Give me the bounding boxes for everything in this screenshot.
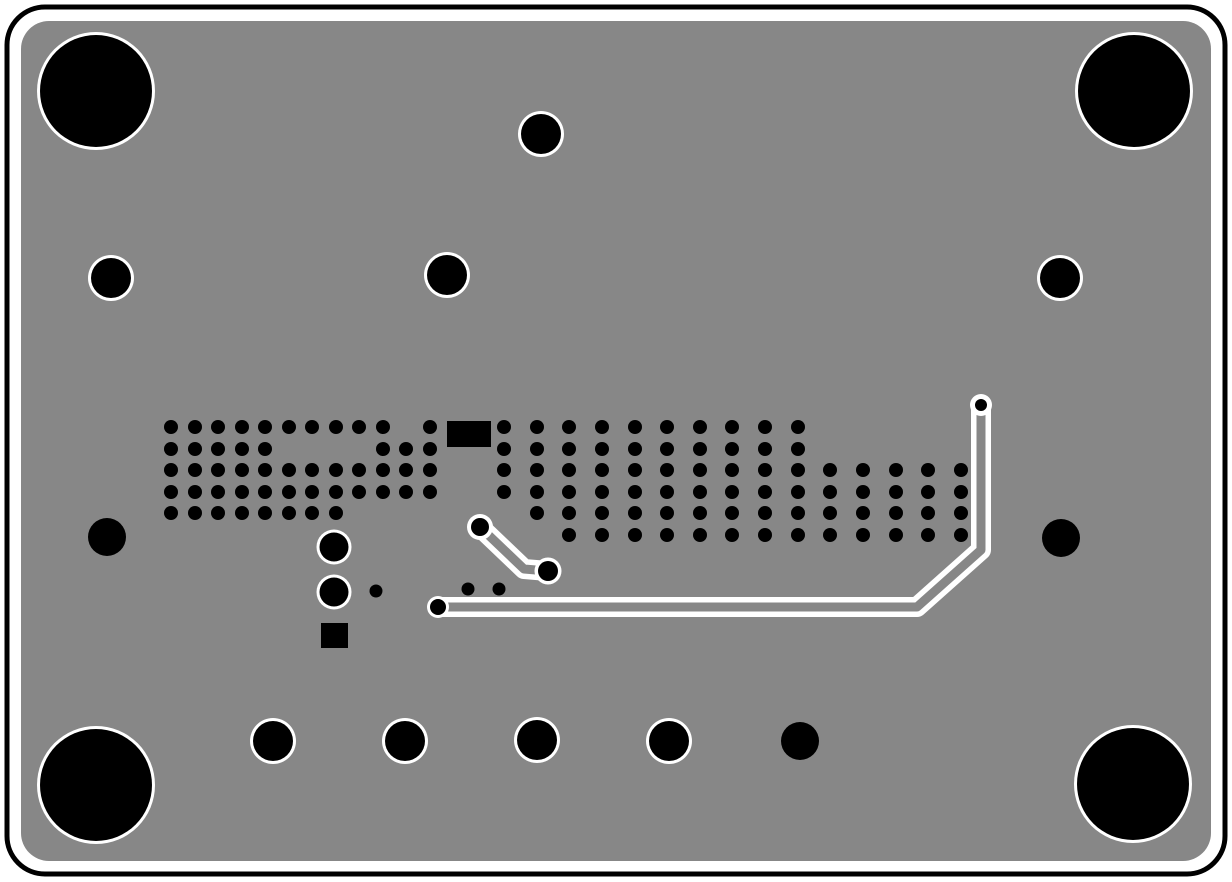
via [329,506,343,520]
via [530,506,544,520]
via [921,485,935,499]
via [376,485,390,499]
plated-hole [385,721,425,761]
via [758,420,772,434]
via [725,506,739,520]
via [628,463,642,477]
via [628,442,642,456]
via [399,463,413,477]
mounting-hole [40,729,152,841]
plain-hole [88,518,126,556]
via [562,463,576,477]
plated-hole [253,721,293,761]
trace-terminal-drill [975,399,987,411]
via [376,420,390,434]
via [889,528,903,542]
via [693,463,707,477]
via [791,485,805,499]
via [188,442,202,456]
via [823,463,837,477]
via [954,528,968,542]
via [562,420,576,434]
via [628,420,642,434]
via [725,485,739,499]
via [399,485,413,499]
via [258,463,272,477]
via [211,420,225,434]
via [282,506,296,520]
via [282,485,296,499]
plated-hole [1040,258,1080,298]
via [562,506,576,520]
via [235,485,249,499]
via [282,463,296,477]
via [823,506,837,520]
mounting-hole [40,35,152,147]
via [235,463,249,477]
plated-hole [427,255,467,295]
plated-hole [517,720,557,760]
via [562,442,576,456]
via [660,442,674,456]
smd-pad [447,421,491,447]
plated-hole [649,721,689,761]
via [399,442,413,456]
via [376,463,390,477]
via [628,528,642,542]
via [423,442,437,456]
trace-terminal-drill [430,599,446,615]
pcb-board-svg [0,0,1232,882]
via [595,442,609,456]
via [562,528,576,542]
via [164,485,178,499]
via [758,528,772,542]
via [856,463,870,477]
via [235,442,249,456]
via [530,442,544,456]
via [921,506,935,520]
via [791,420,805,434]
via [497,442,511,456]
via [352,485,366,499]
via [660,506,674,520]
via [660,420,674,434]
via [497,485,511,499]
via [791,463,805,477]
via [660,528,674,542]
pcb-view [0,0,1232,882]
via [423,463,437,477]
via [423,485,437,499]
via [164,442,178,456]
via [188,463,202,477]
via [562,485,576,499]
via [693,528,707,542]
via [595,528,609,542]
via [791,442,805,456]
via [188,485,202,499]
via [497,463,511,477]
via [856,485,870,499]
via [305,485,319,499]
via [693,420,707,434]
via [493,583,506,596]
via [725,442,739,456]
via [758,442,772,456]
ringed-via [320,533,349,562]
via [660,485,674,499]
via [823,528,837,542]
via [211,463,225,477]
via [725,463,739,477]
mounting-hole [1078,35,1190,147]
via [305,463,319,477]
via [211,442,225,456]
trace-terminal-drill [471,518,489,536]
via [211,506,225,520]
via [164,463,178,477]
via [530,485,544,499]
via [693,485,707,499]
ringed-via [320,578,349,607]
via [725,528,739,542]
via [791,528,805,542]
board-substrate [21,21,1211,861]
via [530,463,544,477]
via [628,506,642,520]
via [758,485,772,499]
via [258,442,272,456]
via [693,442,707,456]
via [329,463,343,477]
via [758,506,772,520]
via [258,420,272,434]
via [954,485,968,499]
via [954,506,968,520]
via [211,485,225,499]
via [921,528,935,542]
via [693,506,707,520]
via [235,420,249,434]
smd-pad [321,623,348,648]
via [188,420,202,434]
via [376,442,390,456]
via [889,506,903,520]
via [856,528,870,542]
via [889,485,903,499]
via [258,485,272,499]
via [329,485,343,499]
via [188,506,202,520]
via [889,463,903,477]
plain-hole [1042,519,1080,557]
via [823,485,837,499]
via [530,420,544,434]
via [305,506,319,520]
via [282,420,296,434]
via [352,463,366,477]
via [423,420,437,434]
via [954,463,968,477]
via [660,463,674,477]
via [758,463,772,477]
plated-hole [91,258,131,298]
via [497,420,511,434]
via [921,463,935,477]
via [462,583,475,596]
via [595,420,609,434]
via [595,506,609,520]
via [164,506,178,520]
via [258,506,272,520]
via [329,420,343,434]
via [352,420,366,434]
via [856,506,870,520]
via [235,506,249,520]
trace-terminal-drill [538,561,558,581]
via [791,506,805,520]
via [628,485,642,499]
via [305,420,319,434]
plated-hole [521,114,561,154]
via [370,585,383,598]
mounting-hole [1077,728,1189,840]
via [164,420,178,434]
via [725,420,739,434]
via [595,463,609,477]
plain-hole [781,722,819,760]
via [595,485,609,499]
